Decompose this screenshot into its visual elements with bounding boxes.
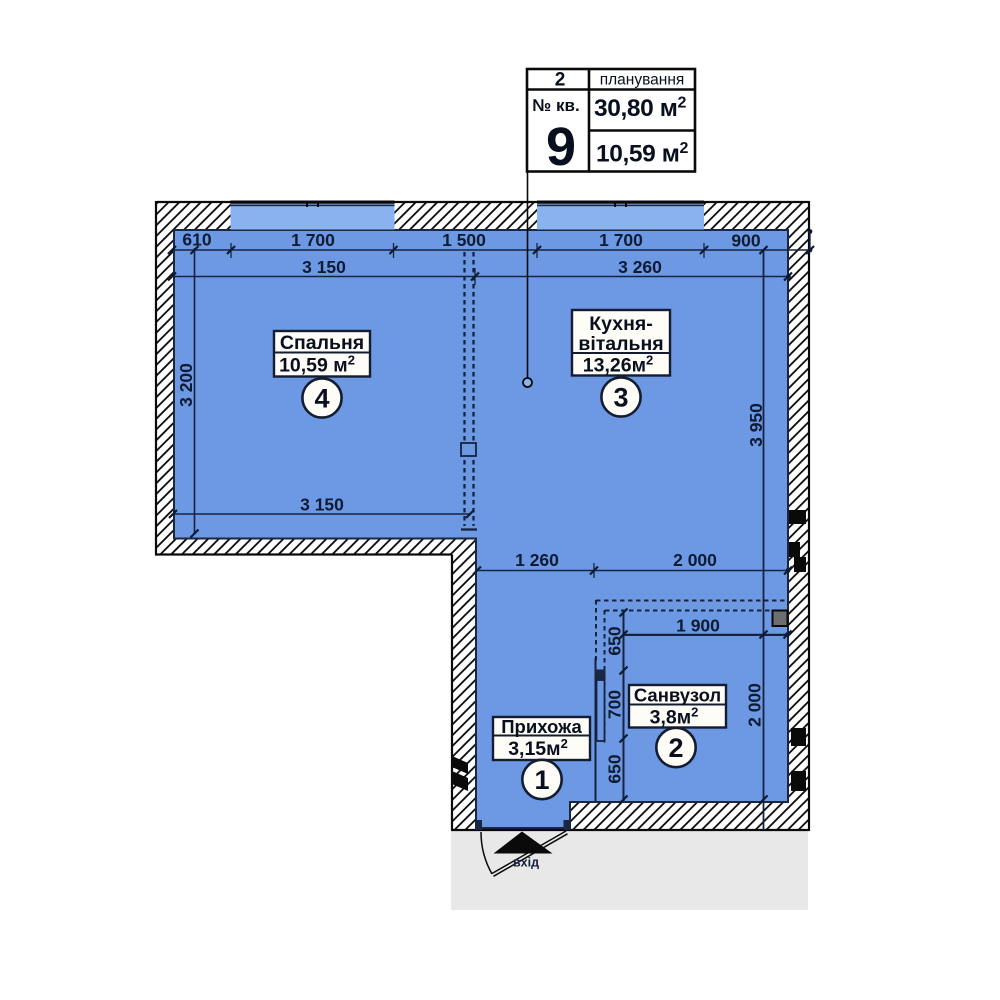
svg-text:3,15м2: 3,15м2	[508, 736, 568, 760]
svg-text:2: 2	[555, 70, 566, 91]
svg-text:1 700: 1 700	[291, 230, 335, 250]
svg-text:30,80 м2: 30,80 м2	[594, 95, 686, 123]
svg-text:Кухня-: Кухня-	[589, 313, 652, 335]
svg-text:3: 3	[613, 383, 628, 413]
svg-text:900: 900	[731, 231, 760, 251]
svg-text:2: 2	[668, 733, 683, 763]
svg-text:700: 700	[605, 690, 625, 719]
svg-text:1 900: 1 900	[676, 616, 720, 636]
svg-text:Спальня: Спальня	[280, 332, 364, 354]
svg-text:1 260: 1 260	[515, 550, 559, 570]
svg-text:650: 650	[605, 754, 625, 783]
svg-text:9: 9	[546, 117, 576, 177]
svg-text:10,59 м2: 10,59 м2	[596, 140, 688, 168]
svg-text:1 700: 1 700	[599, 230, 643, 250]
svg-text:Прихожа: Прихожа	[501, 716, 582, 737]
svg-text:планування: планування	[600, 72, 685, 89]
svg-text:3,8м2: 3,8м2	[650, 705, 699, 729]
svg-text:Санвузол: Санвузол	[634, 685, 721, 706]
svg-text:10,59 м2: 10,59 м2	[279, 353, 355, 377]
svg-text:610: 610	[182, 230, 211, 250]
svg-text:3 150: 3 150	[300, 495, 344, 515]
svg-text:4: 4	[314, 384, 329, 414]
svg-text:3 950: 3 950	[746, 403, 766, 447]
svg-text:вхід: вхід	[513, 856, 539, 870]
svg-text:1 500: 1 500	[442, 230, 486, 250]
svg-text:2 000: 2 000	[745, 683, 765, 727]
svg-text:13,26м2: 13,26м2	[583, 353, 653, 377]
svg-text:3 260: 3 260	[618, 257, 662, 277]
svg-text:№ кв.: № кв.	[532, 96, 579, 115]
svg-text:3 200: 3 200	[176, 363, 196, 407]
svg-text:2 000: 2 000	[673, 550, 717, 570]
svg-text:3 150: 3 150	[302, 257, 346, 277]
svg-text:650: 650	[605, 626, 625, 655]
svg-text:1: 1	[534, 765, 549, 795]
